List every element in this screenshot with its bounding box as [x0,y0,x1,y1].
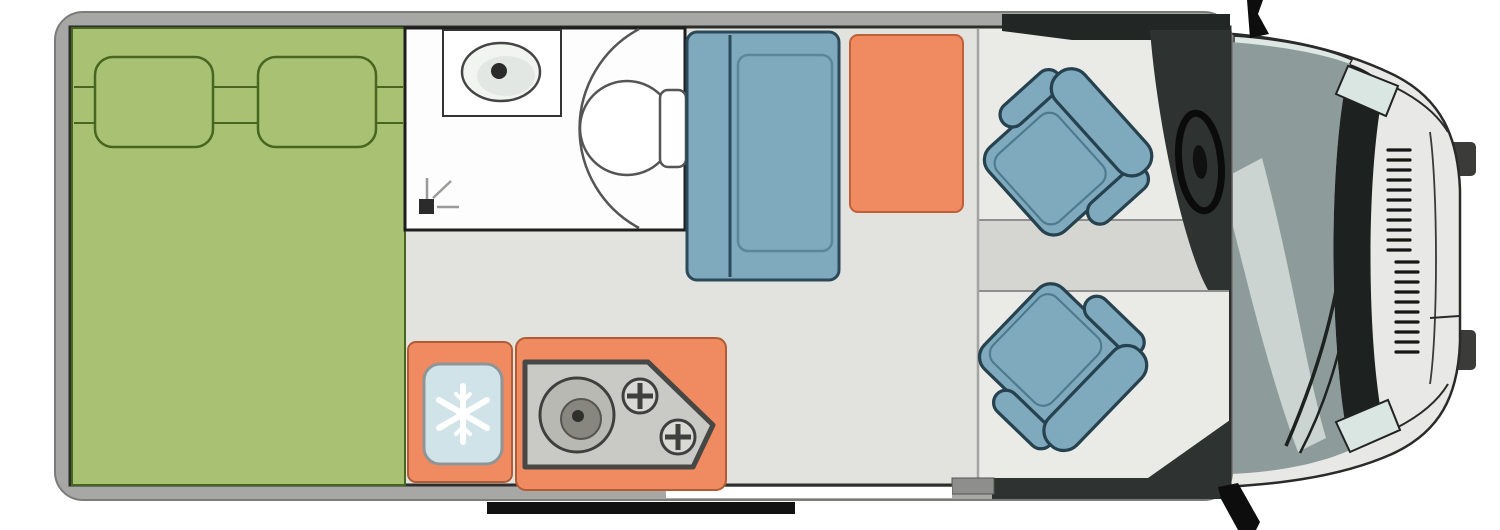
refrigerator [408,342,512,482]
van-cab-exterior [1196,32,1476,488]
campervan-floorplan [0,0,1500,530]
sink-drain [491,63,507,79]
door-handle-block [952,478,994,494]
bed-area [72,28,405,485]
toilet [580,81,686,175]
wing-mirror-top [1247,0,1269,38]
pillow-left [95,57,213,147]
kitchen-sink [540,378,614,452]
bathroom-sink [443,30,561,116]
wing-mirror-bottom [1218,483,1260,530]
burner-1 [623,379,657,413]
bathroom [405,28,686,230]
kitchen [408,338,726,490]
burner-2 [661,420,695,454]
pillow-right [258,57,376,147]
entry-step [487,502,795,514]
table [850,35,963,212]
sofa-bench [687,32,839,280]
kitchen-counter [516,338,726,490]
